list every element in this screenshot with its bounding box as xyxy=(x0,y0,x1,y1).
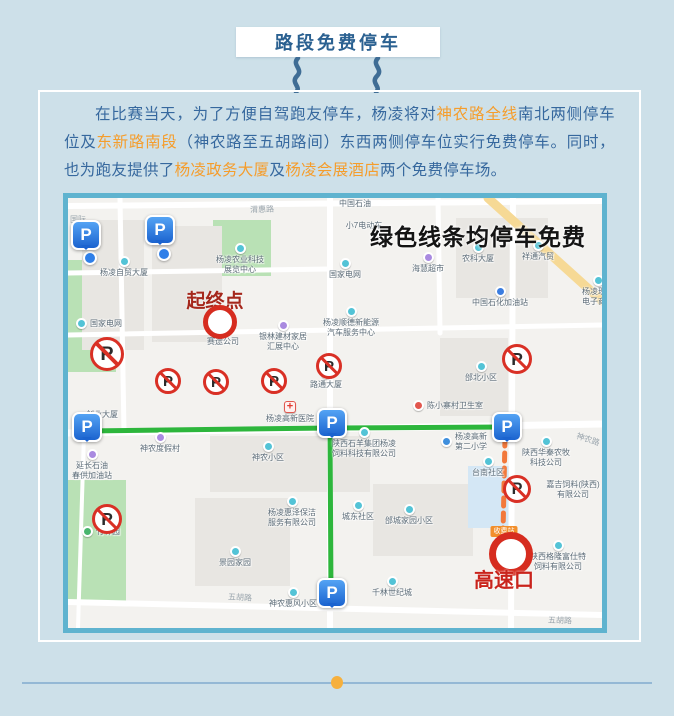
map-poi: 杨凌惠泽保洁服务有限公司 xyxy=(268,496,316,528)
map-poi: 台南社区 xyxy=(472,456,504,478)
teal-poi-icon xyxy=(593,275,603,286)
gas-poi-icon xyxy=(495,286,506,297)
map-poi: 国家电网 xyxy=(76,318,122,329)
road xyxy=(68,201,602,206)
body-text: 及 xyxy=(269,162,285,179)
map-poi: 邰城家园小区 xyxy=(385,504,433,526)
teal-poi-icon xyxy=(119,256,130,267)
map-poi: 杨凌高新第二小学 xyxy=(441,431,487,452)
teal-poi-icon xyxy=(404,504,415,515)
poi-label: 嘉吉饲料(陕西)有限公司 xyxy=(546,480,599,500)
road-label: 五胡路 xyxy=(548,615,572,627)
teal-poi-icon xyxy=(387,576,398,587)
poi-label: 神农惠风小区 xyxy=(269,599,317,609)
teal-poi-icon xyxy=(287,496,298,507)
map-poi: 杨凌高新医院 xyxy=(266,401,314,424)
map-poi: 延长石油春供加油站 xyxy=(72,449,112,481)
map-poi: 中国石油 xyxy=(339,198,371,209)
map-poi: 银林建材家居汇展中心 xyxy=(259,320,307,352)
teal-poi-icon xyxy=(359,427,370,438)
redpin-poi-icon xyxy=(413,400,424,411)
poi-label: 台南社区 xyxy=(472,468,504,478)
body-text: 在比赛当天，为了方便自驾跑友停车，杨凌将对 xyxy=(95,106,437,123)
parking-marker-icon: P xyxy=(71,220,101,250)
poi-label: 千林世纪城 xyxy=(372,588,412,598)
purple-poi-icon xyxy=(87,449,98,460)
teal-poi-icon xyxy=(541,436,552,447)
map-poi: 杨凌自贸大厦 xyxy=(100,256,148,278)
map-headline: 绿色线条均停车免费 xyxy=(370,218,586,252)
poi-label: 陈小寨村卫生室 xyxy=(427,401,483,411)
map-poi: 嘉吉饲料(陕西)有限公司 xyxy=(546,479,599,500)
no-parking-icon: P xyxy=(503,475,531,503)
map-poi: 神农小区 xyxy=(252,441,284,463)
no-parking-icon: P xyxy=(155,368,181,394)
no-parking-glyph: P xyxy=(269,373,279,390)
map-poi: 陈小寨村卫生室 xyxy=(413,400,483,411)
highlight-text: 杨凌政务大厦 xyxy=(175,162,270,179)
poi-label: 杨凌高新医院 xyxy=(266,414,314,424)
poi-label: 杨凌顺德新能源汽车服务中心 xyxy=(323,318,379,338)
poi-label: 邰北小区 xyxy=(465,373,497,383)
poi-label: 路通大厦 xyxy=(310,380,342,390)
poi-label: 农科大厦 xyxy=(462,254,494,264)
map-poi: 杨凌顺德新能源汽车服务中心 xyxy=(323,306,379,338)
teal-poi-icon xyxy=(476,361,487,372)
cross-poi-icon xyxy=(284,401,296,413)
no-parking-icon: P xyxy=(203,369,229,395)
poi-label: 海慧超市 xyxy=(412,264,444,274)
no-parking-icon: P xyxy=(502,344,532,374)
purple-poi-icon xyxy=(423,252,434,263)
hook-right-icon xyxy=(375,58,379,92)
section-title: 路段免费停车 xyxy=(275,29,401,55)
intro-paragraph: 在比赛当天，为了方便自驾跑友停车，杨凌将对神农路全线南北两侧停车位及东新路南段（… xyxy=(64,101,615,185)
purple-poi-icon xyxy=(155,432,166,443)
map-canvas: 渭惠路国际神农路五胡路五胡路中国石油小7电动车杨凌自贸大厦杨凌农业科技展览中心国… xyxy=(68,198,602,628)
poi-label: 中国石油 xyxy=(339,199,371,209)
poi-label: 杨凌高新第二小学 xyxy=(455,432,487,452)
road xyxy=(120,198,124,433)
poi-label: 景园家园 xyxy=(219,558,251,568)
map-poi: 海慧超市 xyxy=(412,252,444,274)
body-text: 两个免费停车场。 xyxy=(380,162,506,179)
highway-exit-label: 高速口 xyxy=(474,564,534,593)
poi-label: 国家电网 xyxy=(329,270,361,280)
poi-label: 陕西石羊集团杨凌饲料科技有限公司 xyxy=(332,439,396,459)
no-parking-glyph: P xyxy=(211,374,221,391)
no-parking-icon: P xyxy=(90,337,124,371)
no-parking-icon: P xyxy=(261,368,287,394)
parking-marker-icon: P xyxy=(492,412,522,442)
map-poi: 陕西格隆富仕特饲料有限公司 xyxy=(530,540,586,572)
teal-poi-icon xyxy=(346,306,357,317)
poi-label: 延长石油春供加油站 xyxy=(72,461,112,481)
no-parking-glyph: P xyxy=(512,480,523,499)
parking-marker-icon: P xyxy=(317,578,347,608)
decorative-hooks xyxy=(288,57,388,93)
map-poi: 千林世纪城 xyxy=(372,576,412,598)
poi-label: 银林建材家居汇展中心 xyxy=(259,332,307,352)
teal-poi-icon xyxy=(263,441,274,452)
teal-poi-icon xyxy=(288,587,299,598)
parking-marker-icon: P xyxy=(145,215,175,245)
teal-poi-icon xyxy=(340,258,351,269)
poi-label: 神农小区 xyxy=(252,453,284,463)
start-finish-ring-icon xyxy=(203,305,237,339)
highlight-text: 杨凌会展酒店 xyxy=(285,162,380,179)
no-parking-glyph: P xyxy=(100,343,113,366)
teal-poi-icon xyxy=(76,318,87,329)
free-parking-route xyxy=(330,428,331,594)
no-parking-glyph: P xyxy=(511,349,523,370)
teal-poi-icon xyxy=(483,456,494,467)
poi-label: 杨凌惠泽保洁服务有限公司 xyxy=(268,508,316,528)
no-parking-icon: P xyxy=(316,353,342,379)
map-poi: 神农度假村 xyxy=(140,432,180,454)
poi-label: 陕西格隆富仕特饲料有限公司 xyxy=(530,552,586,572)
hook-left-icon xyxy=(295,58,299,92)
highlight-text: 神农路全线 xyxy=(437,106,518,123)
section-title-box: 路段免费停车 xyxy=(236,27,440,57)
no-parking-icon: P xyxy=(92,504,122,534)
teal-poi-icon xyxy=(230,546,241,557)
map-poi: 邰北小区 xyxy=(465,361,497,383)
poi-label: 中国石化加油站 xyxy=(472,298,528,308)
poi-label: 陕西华秦农牧科技公司 xyxy=(522,448,570,468)
green-poi-icon xyxy=(82,526,93,537)
highlight-text: 东新路南段 xyxy=(96,134,177,151)
road-label: 五胡路 xyxy=(228,591,253,603)
parking-marker-icon: P xyxy=(72,412,102,442)
parking-marker-icon: P xyxy=(317,408,347,438)
map-poi: 景园家园 xyxy=(219,546,251,568)
map-poi: 陕西华秦农牧科技公司 xyxy=(522,436,570,468)
parking-map: 渭惠路国际神农路五胡路五胡路中国石油小7电动车杨凌自贸大厦杨凌农业科技展览中心国… xyxy=(63,193,607,633)
no-parking-glyph: P xyxy=(101,509,113,530)
poi-label: 城东社区 xyxy=(342,512,374,522)
poi-label: 国家电网 xyxy=(90,319,122,329)
teal-poi-icon xyxy=(235,243,246,254)
map-poi: 中国石化加油站 xyxy=(472,286,528,308)
map-poi: 城东社区 xyxy=(342,500,374,522)
no-parking-glyph: P xyxy=(324,358,334,375)
no-parking-glyph: P xyxy=(163,373,173,390)
road-label: 渭惠路 xyxy=(250,204,274,216)
map-poi: 杨凌农业科技展览中心 xyxy=(216,243,264,275)
map-poi: 国家电网 xyxy=(329,258,361,280)
teal-poi-icon xyxy=(553,540,564,551)
poi-label: 杨凌农业科技展览中心 xyxy=(216,255,264,275)
poi-label: 杨凌自贸大厦 xyxy=(100,268,148,278)
map-poi: 杨凌现代电子商务 xyxy=(582,275,602,307)
poi-label: 神农度假村 xyxy=(140,444,180,454)
poi-label: 祥通汽贸 xyxy=(522,252,554,262)
map-poi: 神农惠风小区 xyxy=(269,587,317,609)
poi-label: 杨凌现代电子商务 xyxy=(582,287,602,307)
footer-divider-dot-icon xyxy=(331,676,343,689)
purple-poi-icon xyxy=(278,320,289,331)
school-poi-icon xyxy=(441,436,452,447)
poi-label: 邰城家园小区 xyxy=(385,516,433,526)
teal-poi-icon xyxy=(353,500,364,511)
content-card: 在比赛当天，为了方便自驾跑友停车，杨凌将对神农路全线南北两侧停车位及东新路南段（… xyxy=(38,90,641,642)
